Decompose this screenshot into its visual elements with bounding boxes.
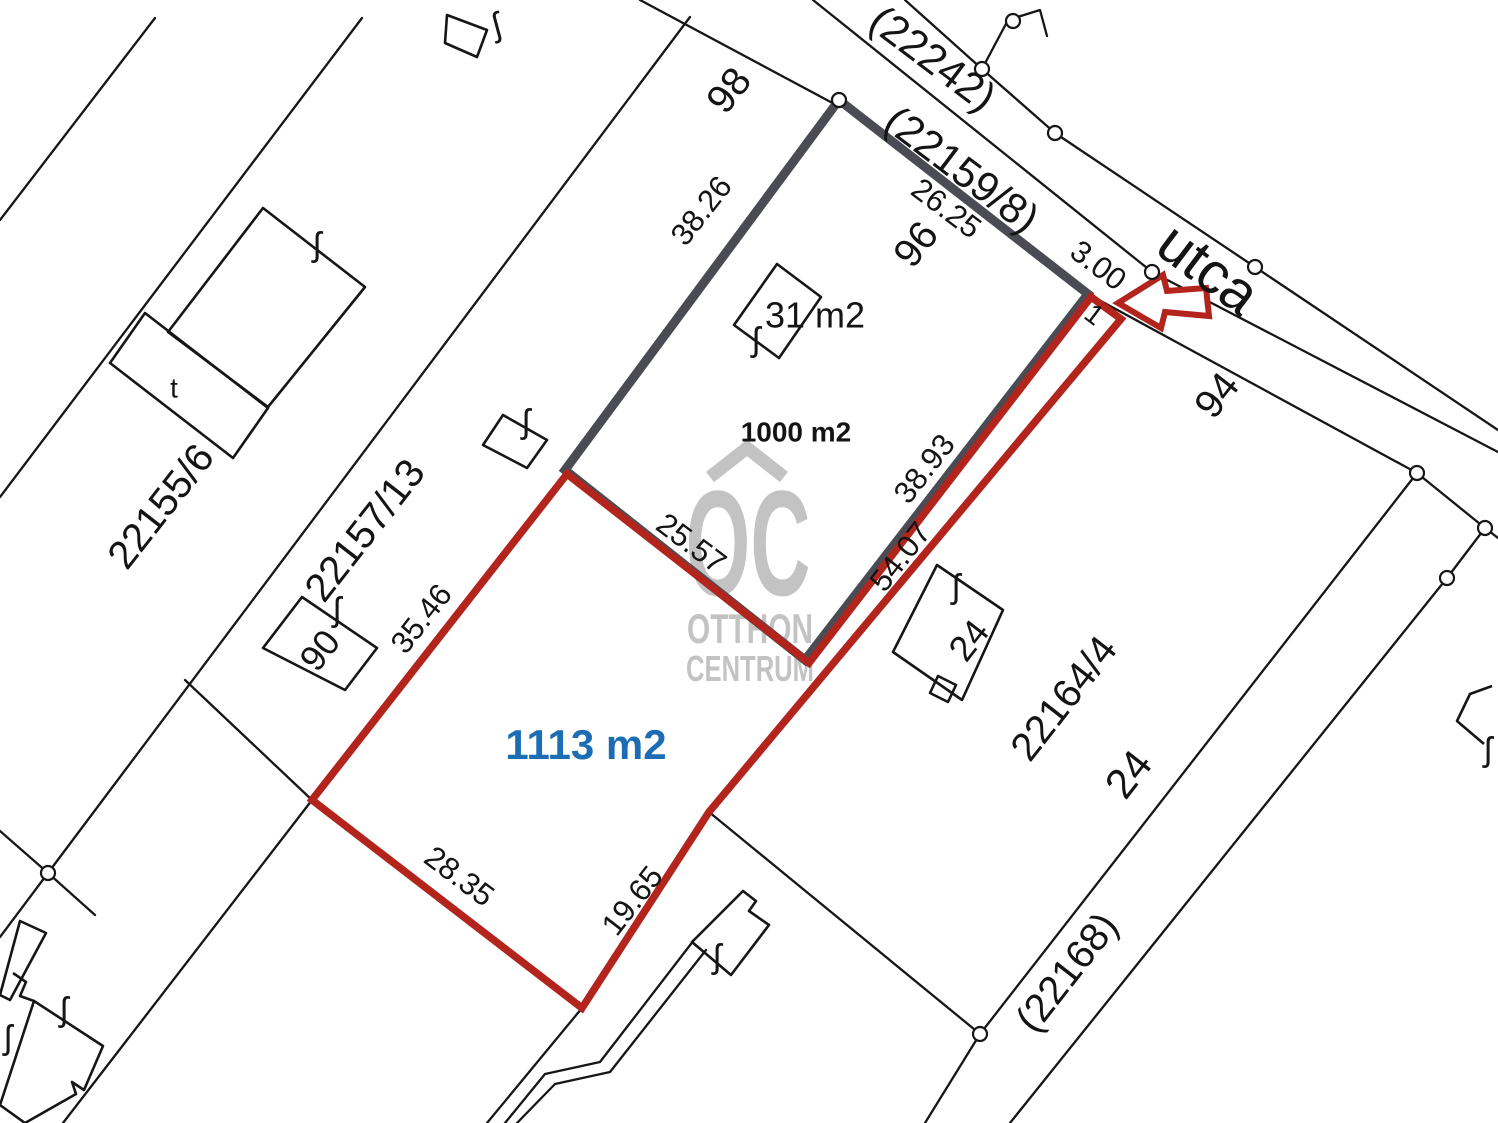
boundary-marker [1440, 571, 1454, 585]
label-area-1113: 1113 m2 [505, 721, 666, 768]
label-building-area-31: 31 m2 [765, 295, 865, 336]
boundary-marker [1478, 521, 1492, 535]
label-mark-t: t [170, 372, 178, 403]
label-area-1000: 1000 m2 [741, 416, 852, 447]
boundary-marker [832, 93, 846, 107]
map-canvas: OCOTTHONCENTRUMʃʃʃʃʃʃʃʃʃʃ98(22242)(22159… [0, 0, 1498, 1123]
boundary-marker [1048, 126, 1062, 140]
boundary-marker [1410, 466, 1424, 480]
boundary-marker [973, 1027, 987, 1041]
boundary-marker [1006, 14, 1020, 28]
boundary-marker [41, 866, 55, 880]
cadastral-map: OCOTTHONCENTRUMʃʃʃʃʃʃʃʃʃʃ98(22242)(22159… [0, 0, 1498, 1123]
